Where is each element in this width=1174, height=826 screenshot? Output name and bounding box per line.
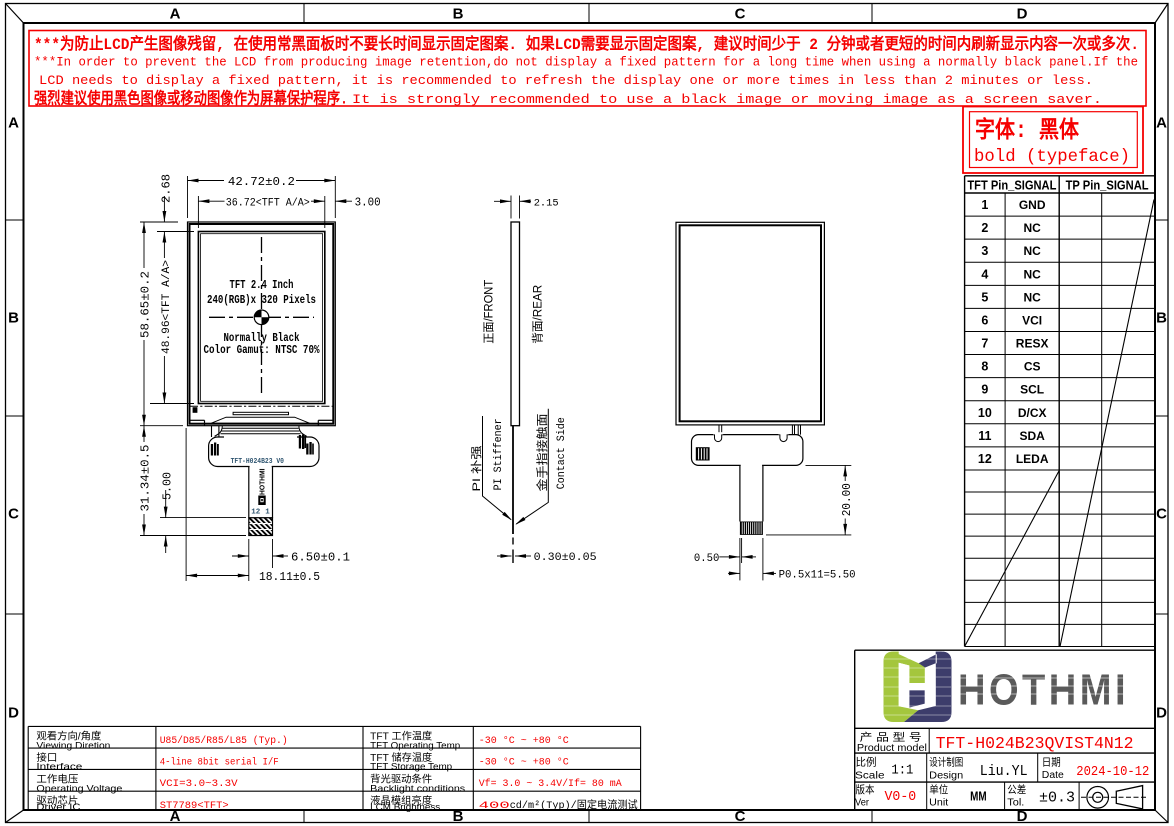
svg-text:2.15: 2.15 xyxy=(534,197,559,209)
svg-text:PI 补强: PI 补强 xyxy=(470,445,483,491)
svg-text:5.00: 5.00 xyxy=(160,472,174,500)
svg-text:Product model: Product model xyxy=(857,742,927,754)
svg-text:bold (typeface): bold (typeface) xyxy=(974,147,1130,167)
svg-text:Viewing Diretion: Viewing Diretion xyxy=(36,740,110,751)
svg-text:***为防止LCD产生图像残留, 在使用常黑面板时不要长时间: ***为防止LCD产生图像残留, 在使用常黑面板时不要长时间显示固定图案. 如果… xyxy=(34,34,1139,54)
svg-text:Contact Side: Contact Side xyxy=(556,417,568,489)
svg-text:SDA: SDA xyxy=(1019,429,1045,443)
svg-text:Operating Voltage: Operating Voltage xyxy=(36,783,122,794)
svg-text:1: 1 xyxy=(981,198,988,212)
svg-text:Vf= 3.0 ~ 3.4V/If= 80 mA: Vf= 3.0 ~ 3.4V/If= 80 mA xyxy=(479,778,623,790)
svg-text:NC: NC xyxy=(1023,221,1041,235)
svg-text:单位: 单位 xyxy=(929,783,948,796)
svg-text:12: 12 xyxy=(978,452,992,466)
svg-text:公差: 公差 xyxy=(1007,783,1026,796)
svg-text:1:1: 1:1 xyxy=(891,763,913,779)
svg-text:C: C xyxy=(735,6,746,23)
svg-text:4-line 8bit serial I/F: 4-line 8bit serial I/F xyxy=(160,757,279,769)
svg-text:4: 4 xyxy=(981,267,988,281)
svg-text:2: 2 xyxy=(981,221,988,235)
svg-text:A: A xyxy=(1156,115,1167,132)
svg-text:It is strongly recommended to: It is strongly recommended to use a blac… xyxy=(352,92,1102,107)
svg-text:***In order to prevent the LCD: ***In order to prevent the LCD from prod… xyxy=(34,56,1138,70)
svg-text:D/CX: D/CX xyxy=(1018,406,1047,420)
svg-text:36.72<TFT A/A>: 36.72<TFT A/A> xyxy=(226,198,310,210)
svg-text:NC: NC xyxy=(1023,244,1041,258)
svg-text:VCI: VCI xyxy=(1022,313,1042,327)
svg-text:±0.3: ±0.3 xyxy=(1039,789,1075,806)
svg-text:金手指接触面: 金手指接触面 xyxy=(535,414,549,492)
svg-text:设计制图: 设计制图 xyxy=(929,756,963,769)
svg-text:LCM Brightness: LCM Brightness xyxy=(370,802,440,813)
svg-text:20.00: 20.00 xyxy=(841,483,854,516)
svg-text:Date: Date xyxy=(1042,770,1064,781)
svg-text:LEDA: LEDA xyxy=(1016,452,1049,466)
svg-text:NC: NC xyxy=(1023,267,1041,281)
svg-text:TFT-H024B23 V0: TFT-H024B23 V0 xyxy=(231,458,285,466)
svg-text:-30 °C ~ +80 °C: -30 °C ~ +80 °C xyxy=(479,735,569,747)
svg-text:42.72±0.2: 42.72±0.2 xyxy=(228,175,295,189)
svg-text:3.00: 3.00 xyxy=(355,197,381,210)
svg-text:MM: MM xyxy=(970,790,987,804)
svg-text:B: B xyxy=(1156,310,1167,327)
svg-text:TFT-H024B23QVIST4N12: TFT-H024B23QVIST4N12 xyxy=(936,735,1134,754)
svg-text:TFT Operating Temp: TFT Operating Temp xyxy=(370,740,460,751)
svg-text:V0-0: V0-0 xyxy=(885,790,917,805)
svg-text:2.68: 2.68 xyxy=(159,174,173,203)
svg-text:HOTHMI: HOTHMI xyxy=(958,666,1129,715)
svg-text:10: 10 xyxy=(978,406,992,420)
svg-text:HOTHMI: HOTHMI xyxy=(260,468,267,495)
svg-text:1: 1 xyxy=(265,509,270,517)
svg-text:NC: NC xyxy=(1023,290,1041,304)
svg-text:Color Gamut: NTSC 70%: Color Gamut: NTSC 70% xyxy=(204,344,320,357)
svg-text:Scale: Scale xyxy=(855,771,885,782)
svg-text:RESX: RESX xyxy=(1016,337,1049,351)
svg-text:日期: 日期 xyxy=(1042,757,1061,769)
svg-text:Unit: Unit xyxy=(929,798,948,809)
svg-text:12: 12 xyxy=(251,509,261,517)
svg-text:2024-10-12: 2024-10-12 xyxy=(1076,765,1149,780)
svg-text:A: A xyxy=(170,6,181,23)
svg-text:D: D xyxy=(1017,6,1028,23)
svg-text:TFT Pin_SIGNAL: TFT Pin_SIGNAL xyxy=(967,179,1056,193)
svg-text:字体: 黑体: 字体: 黑体 xyxy=(975,116,1080,144)
svg-text:P0.5x11=5.50: P0.5x11=5.50 xyxy=(779,569,856,581)
svg-text:比例: 比例 xyxy=(856,756,877,769)
svg-text:18.11±0.5: 18.11±0.5 xyxy=(259,571,320,584)
svg-text:cd/m²(Typ)/固定电流测试: cd/m²(Typ)/固定电流测试 xyxy=(510,798,638,812)
svg-text:TP Pin_SIGNAL: TP Pin_SIGNAL xyxy=(1066,179,1149,193)
svg-text:CS: CS xyxy=(1024,360,1041,374)
svg-text:LCD needs to display a fixed p: LCD needs to display a fixed pattern, it… xyxy=(39,73,1093,88)
svg-text:6: 6 xyxy=(981,313,988,327)
svg-text:Backlight conditions: Backlight conditions xyxy=(370,783,465,794)
svg-text:Driver IC: Driver IC xyxy=(36,802,80,813)
svg-text:9: 9 xyxy=(981,383,988,397)
svg-text:D: D xyxy=(1017,808,1028,825)
svg-text:240(RGB)x 320 Pixels: 240(RGB)x 320 Pixels xyxy=(207,294,316,307)
svg-text:正面/FRONT: 正面/FRONT xyxy=(483,280,495,344)
svg-text:3: 3 xyxy=(981,244,988,258)
svg-text:-30 °C ~ +80 °C: -30 °C ~ +80 °C xyxy=(479,757,569,769)
svg-text:5: 5 xyxy=(981,290,988,304)
svg-text:400: 400 xyxy=(479,800,510,812)
svg-text:Liu.YL: Liu.YL xyxy=(980,763,1028,780)
svg-text:D: D xyxy=(1156,705,1167,722)
svg-text:TFT 2.4 Inch: TFT 2.4 Inch xyxy=(230,279,294,292)
svg-text:U85/D85/R85/L85 (Typ.): U85/D85/R85/L85 (Typ.) xyxy=(160,735,288,747)
svg-text:Tol.: Tol. xyxy=(1007,798,1024,809)
svg-text:0.30±0.05: 0.30±0.05 xyxy=(534,552,597,564)
svg-text:C: C xyxy=(8,506,19,523)
svg-text:TFT Storage Temp: TFT Storage Temp xyxy=(370,762,452,773)
svg-text:VCI=3.0~3.3V: VCI=3.0~3.3V xyxy=(160,778,239,790)
svg-text:GND: GND xyxy=(1019,198,1046,212)
svg-text:48.96<TFT A/A>: 48.96<TFT A/A> xyxy=(161,260,173,354)
svg-text:D: D xyxy=(8,705,19,722)
svg-text:0.50: 0.50 xyxy=(694,553,719,565)
svg-text:8: 8 xyxy=(981,360,988,374)
svg-text:Design: Design xyxy=(929,771,963,782)
svg-text:Interface: Interface xyxy=(36,762,82,773)
svg-text:11: 11 xyxy=(978,429,991,443)
svg-text:C: C xyxy=(735,808,746,825)
svg-text:ST7789<TFT>: ST7789<TFT> xyxy=(160,800,229,812)
svg-text:B: B xyxy=(8,310,19,327)
svg-text:背面/REAR: 背面/REAR xyxy=(530,285,544,344)
svg-text:版本: 版本 xyxy=(856,783,875,796)
svg-text:31.34±0.5: 31.34±0.5 xyxy=(139,445,153,512)
svg-text:6.50±0.1: 6.50±0.1 xyxy=(291,551,350,564)
svg-text:58.65±0.2: 58.65±0.2 xyxy=(139,271,153,338)
svg-text:Normally Black: Normally Black xyxy=(224,332,300,345)
svg-text:PI Stiffener: PI Stiffener xyxy=(493,418,505,490)
svg-text:强烈建议使用黑色图像或移动图像作为屏幕保护程序.: 强烈建议使用黑色图像或移动图像作为屏幕保护程序. xyxy=(34,89,348,109)
svg-text:7: 7 xyxy=(981,337,988,351)
svg-text:A: A xyxy=(8,115,19,132)
svg-text:B: B xyxy=(453,6,464,23)
svg-text:SCL: SCL xyxy=(1020,383,1044,397)
svg-text:Ver: Ver xyxy=(855,798,870,809)
svg-text:C: C xyxy=(1156,506,1167,523)
